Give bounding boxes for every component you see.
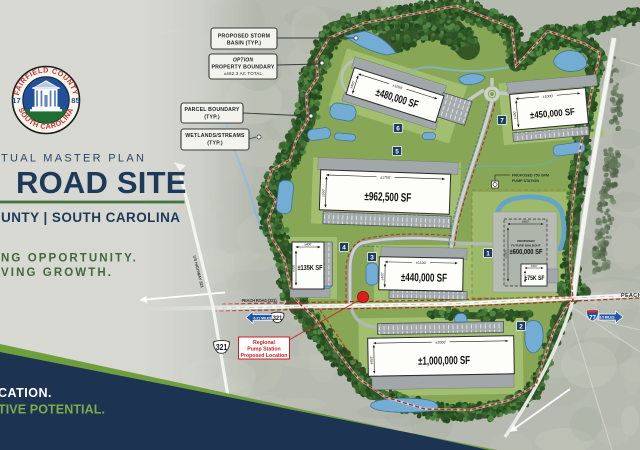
svg-text:FUTURE BUILDOUT: FUTURE BUILDOUT: [511, 243, 540, 247]
svg-text:Regional: Regional: [253, 340, 275, 346]
svg-text:6.21 MILES: 6.21 MILES: [254, 316, 273, 320]
svg-text:±300’: ±300’: [530, 264, 537, 268]
svg-text:±550’: ±550’: [321, 188, 325, 197]
svg-text:VING GROWTH.: VING GROWTH.: [1, 267, 113, 279]
svg-text:±1100’: ±1100’: [416, 261, 427, 265]
svg-text:±75K SF: ±75K SF: [525, 276, 545, 282]
svg-text:±550’: ±550’: [369, 356, 373, 365]
svg-text:7: 7: [500, 117, 504, 124]
svg-text:NG OPPORTUNITY.: NG OPPORTUNITY.: [1, 253, 138, 265]
svg-text:BASIN (TYP.): BASIN (TYP.): [227, 41, 261, 47]
svg-text:±1750’: ±1750’: [380, 175, 391, 179]
svg-text:OPTION: OPTION: [233, 58, 254, 64]
svg-text:85: 85: [71, 96, 80, 105]
svg-text:±450’: ±450’: [513, 110, 518, 119]
svg-text:TIVE POTENTIAL.: TIVE POTENTIAL.: [0, 403, 105, 417]
svg-text:±400’: ±400’: [304, 243, 312, 247]
svg-text:Proposed Location: Proposed Location: [241, 353, 288, 359]
svg-text:321: 321: [273, 315, 283, 322]
svg-text:TUAL MASTER PLAN: TUAL MASTER PLAN: [1, 153, 146, 165]
svg-text:PEACH ROAD (321): PEACH ROAD (321): [241, 298, 277, 303]
svg-text:77: 77: [589, 314, 596, 321]
svg-text:±962,500 SF: ±962,500 SF: [364, 189, 411, 205]
svg-text:(TYP.): (TYP.): [204, 115, 220, 121]
svg-text:17: 17: [12, 96, 20, 105]
svg-text:3.5 MILES: 3.5 MILES: [599, 316, 614, 320]
svg-text:2: 2: [519, 323, 523, 330]
svg-text:±330’: ±330’: [292, 264, 296, 272]
svg-text:±135K SF: ±135K SF: [298, 265, 324, 272]
svg-text:PROPOSED STORM: PROPOSED STORM: [218, 34, 270, 40]
svg-text:6: 6: [396, 125, 400, 132]
svg-text:PUMP STATION: PUMP STATION: [512, 179, 539, 183]
svg-text:PROPOSED 750 GPM: PROPOSED 750 GPM: [512, 174, 549, 178]
svg-text:UNTY | SOUTH CAROLINA: UNTY | SOUTH CAROLINA: [1, 210, 180, 225]
svg-text:±900’: ±900’: [522, 220, 530, 224]
svg-text:±400’: ±400’: [380, 272, 384, 281]
svg-text:±1500’: ±1500’: [504, 249, 508, 258]
svg-text:1: 1: [486, 250, 490, 257]
svg-text:5: 5: [395, 148, 399, 155]
svg-text:PEACH RO: PEACH RO: [621, 293, 640, 299]
svg-text:±600,000 SF: ±600,000 SF: [510, 249, 544, 256]
svg-text:CATION.: CATION.: [0, 386, 52, 400]
svg-text:3: 3: [370, 254, 374, 261]
svg-text:PROPERTY BOUNDARY: PROPERTY BOUNDARY: [211, 65, 274, 71]
svg-text:Pump Station: Pump Station: [247, 347, 280, 353]
svg-text:±440,000 SF: ±440,000 SF: [401, 272, 447, 285]
svg-text:PARCEL BOUNDARY: PARCEL BOUNDARY: [184, 107, 239, 113]
svg-text:4: 4: [342, 244, 346, 251]
svg-text:PROPOSED: PROPOSED: [517, 239, 535, 243]
svg-text:ROAD SITE: ROAD SITE: [16, 165, 187, 200]
svg-text:±2000’: ±2000’: [435, 340, 446, 344]
svg-text:±462.3 AC TOTAL: ±462.3 AC TOTAL: [224, 71, 263, 76]
svg-text:±1,000,000 SF: ±1,000,000 SF: [418, 355, 470, 368]
svg-text:321: 321: [216, 343, 228, 352]
svg-text:(TYP.): (TYP.): [207, 141, 223, 147]
svg-text:WETLANDS/STREAMS: WETLANDS/STREAMS: [185, 133, 245, 139]
